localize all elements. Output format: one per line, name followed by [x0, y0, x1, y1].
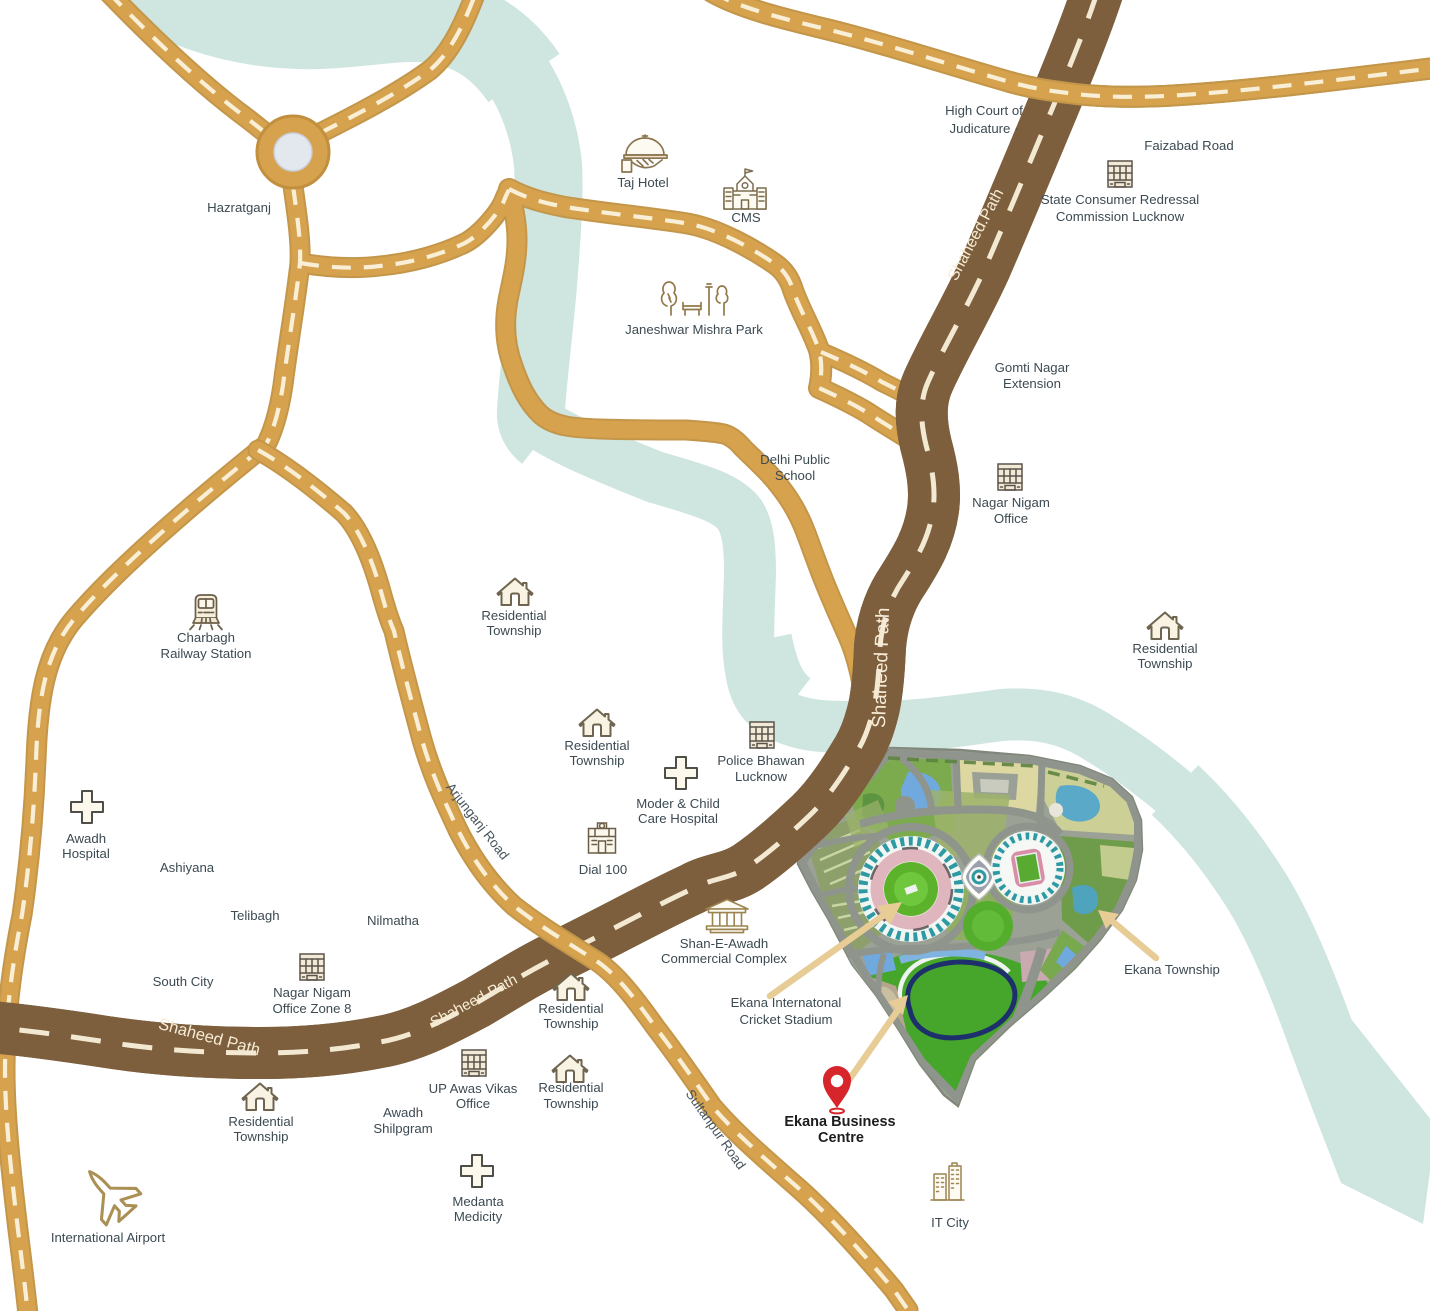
svg-text:Awadh: Awadh: [383, 1105, 423, 1120]
svg-text:Commercial Complex: Commercial Complex: [661, 951, 787, 966]
svg-text:Hospital: Hospital: [62, 846, 110, 861]
svg-text:Township: Township: [487, 623, 542, 638]
svg-text:Centre: Centre: [818, 1130, 864, 1146]
svg-text:Township: Township: [544, 1016, 599, 1031]
svg-text:Lucknow: Lucknow: [735, 769, 788, 784]
svg-text:Cricket Stadium: Cricket Stadium: [739, 1012, 832, 1027]
svg-text:Police Bhawan: Police Bhawan: [717, 753, 804, 768]
svg-text:UP Awas Vikas: UP Awas Vikas: [429, 1081, 518, 1096]
svg-text:Residential: Residential: [228, 1114, 293, 1129]
svg-text:Shan-E-Awadh: Shan-E-Awadh: [680, 936, 768, 951]
svg-text:Hazratganj: Hazratganj: [207, 200, 271, 215]
svg-text:Ashiyana: Ashiyana: [160, 860, 215, 875]
svg-text:Office: Office: [994, 511, 1028, 526]
svg-text:Township: Township: [234, 1129, 289, 1144]
svg-text:Railway Station: Railway Station: [161, 646, 252, 661]
svg-text:Ekana Internatonal: Ekana Internatonal: [731, 995, 842, 1010]
svg-text:Taj Hotel: Taj Hotel: [617, 175, 668, 190]
svg-text:Nagar Nigam: Nagar Nigam: [972, 495, 1050, 510]
svg-text:Commission Lucknow: Commission Lucknow: [1056, 209, 1185, 224]
svg-text:Judicature ·: Judicature ·: [950, 121, 1019, 136]
svg-text:Medicity: Medicity: [454, 1209, 503, 1224]
svg-text:Nilmatha: Nilmatha: [367, 913, 420, 928]
svg-text:CMS: CMS: [731, 210, 761, 225]
svg-text:Delhi Public: Delhi Public: [760, 452, 830, 467]
svg-text:Faizabad Road: Faizabad Road: [1144, 138, 1233, 153]
svg-text:Residential: Residential: [564, 738, 629, 753]
svg-text:International Airport: International Airport: [51, 1230, 166, 1245]
svg-text:Moder & Child: Moder & Child: [636, 796, 720, 811]
svg-text:Care Hospital: Care Hospital: [638, 811, 718, 826]
svg-text:Awadh: Awadh: [66, 831, 106, 846]
svg-text:Township: Township: [1138, 656, 1193, 671]
svg-text:Ekana Business: Ekana Business: [784, 1114, 895, 1130]
svg-text:Township: Township: [570, 753, 625, 768]
svg-text:Shaheed Path: Shaheed Path: [869, 607, 894, 728]
svg-text:Dial 100: Dial 100: [579, 862, 627, 877]
svg-text:Residential: Residential: [538, 1080, 603, 1095]
svg-text:Janeshwar Mishra Park: Janeshwar Mishra Park: [625, 322, 763, 337]
svg-text:Office: Office: [456, 1096, 490, 1111]
svg-text:High Court of: High Court of: [945, 103, 1023, 118]
svg-text:State Consumer Redressal: State Consumer Redressal: [1041, 192, 1199, 207]
svg-text:School: School: [775, 468, 815, 483]
svg-text:Township: Township: [544, 1096, 599, 1111]
svg-text:Extension: Extension: [1003, 376, 1061, 391]
svg-text:Office Zone 8: Office Zone 8: [273, 1001, 352, 1016]
svg-text:IT City: IT City: [931, 1215, 969, 1230]
svg-text:Gomti Nagar: Gomti Nagar: [995, 360, 1070, 375]
svg-text:Ekana Township: Ekana Township: [1124, 962, 1220, 977]
svg-text:Shilpgram: Shilpgram: [373, 1121, 432, 1136]
svg-text:Residential: Residential: [1132, 641, 1197, 656]
svg-text:South City: South City: [153, 974, 214, 989]
svg-text:Nagar Nigam: Nagar Nigam: [273, 985, 351, 1000]
svg-text:Medanta: Medanta: [452, 1194, 504, 1209]
svg-text:Residential: Residential: [538, 1001, 603, 1016]
svg-text:Telibagh: Telibagh: [230, 908, 279, 923]
svg-text:Residential: Residential: [481, 608, 546, 623]
svg-text:Charbagh: Charbagh: [177, 630, 235, 645]
